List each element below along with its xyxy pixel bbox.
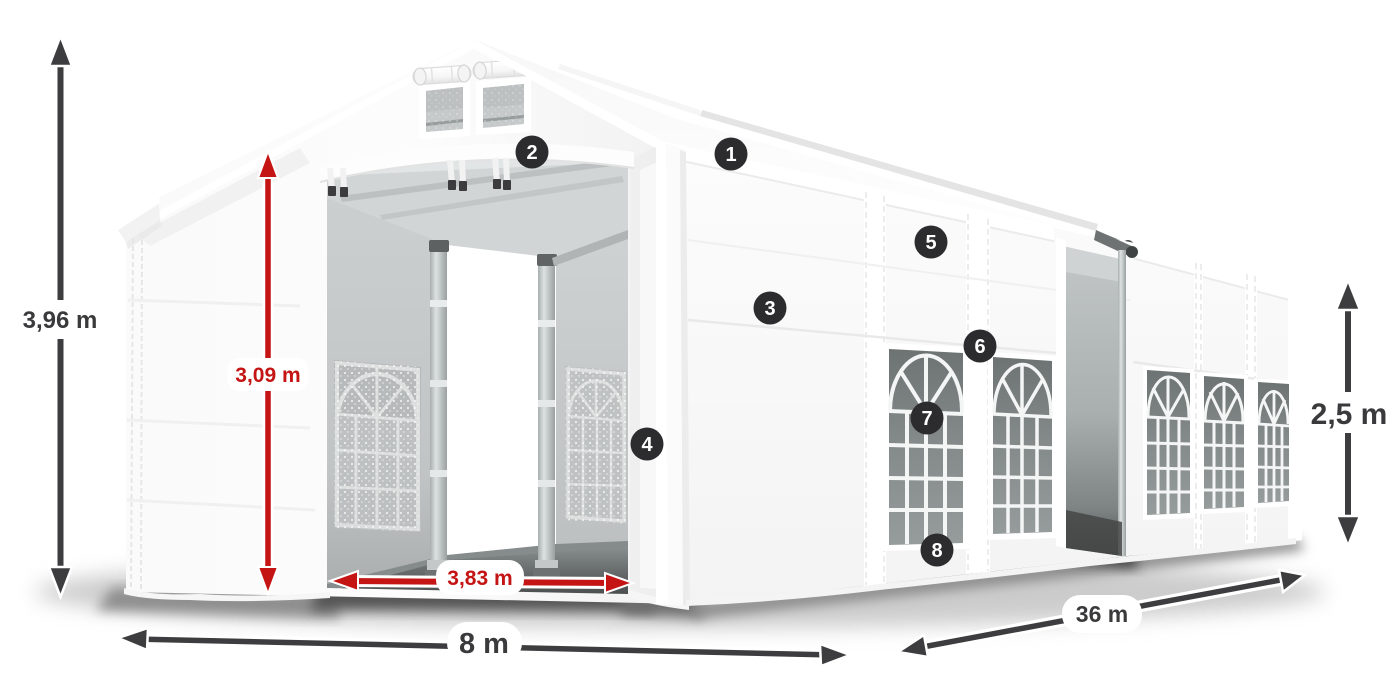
svg-text:3: 3 bbox=[764, 298, 775, 320]
svg-text:6: 6 bbox=[974, 336, 985, 358]
svg-text:8: 8 bbox=[931, 540, 942, 562]
svg-text:36 m: 36 m bbox=[1076, 601, 1128, 627]
svg-text:3,96 m: 3,96 m bbox=[23, 307, 98, 334]
svg-text:1: 1 bbox=[725, 144, 736, 166]
svg-text:7: 7 bbox=[921, 408, 932, 430]
svg-text:2,5 m: 2,5 m bbox=[1311, 398, 1388, 431]
svg-text:2: 2 bbox=[526, 142, 537, 164]
svg-text:3,09 m: 3,09 m bbox=[235, 364, 300, 387]
svg-text:8 m: 8 m bbox=[459, 628, 509, 660]
svg-text:3,83 m: 3,83 m bbox=[447, 567, 512, 590]
svg-text:5: 5 bbox=[925, 232, 936, 254]
svg-text:4: 4 bbox=[641, 434, 653, 456]
